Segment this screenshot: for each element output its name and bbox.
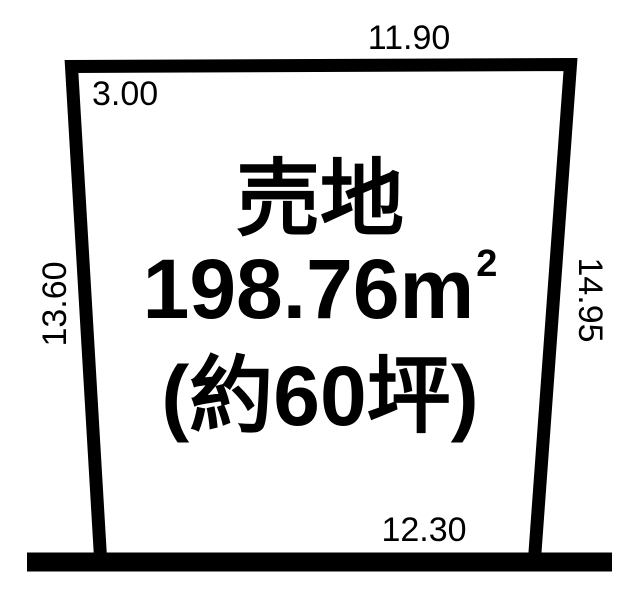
- dimension-top: 11.90: [368, 20, 451, 56]
- dimension-right: 14.95: [572, 257, 608, 342]
- parcel-area-line: 198.76m2: [143, 244, 498, 351]
- dimension-left: 13.60: [37, 261, 73, 346]
- land-plot-diagram: 11.90 3.00 13.60 14.95 12.30 売地 198.76m2…: [0, 0, 642, 600]
- parcel-area-unit: m: [400, 242, 475, 336]
- parcel-center-text: 売地 198.76m2 (約60坪): [143, 154, 498, 441]
- parcel-type-label: 売地: [143, 154, 498, 244]
- parcel-area-tsubo: (約60坪): [143, 351, 498, 441]
- parcel-area-value: 198.76: [143, 242, 400, 336]
- dimension-top-left-corner: 3.00: [92, 76, 158, 112]
- dimension-bottom: 12.30: [381, 512, 466, 548]
- parcel-area-exponent: 2: [476, 219, 497, 309]
